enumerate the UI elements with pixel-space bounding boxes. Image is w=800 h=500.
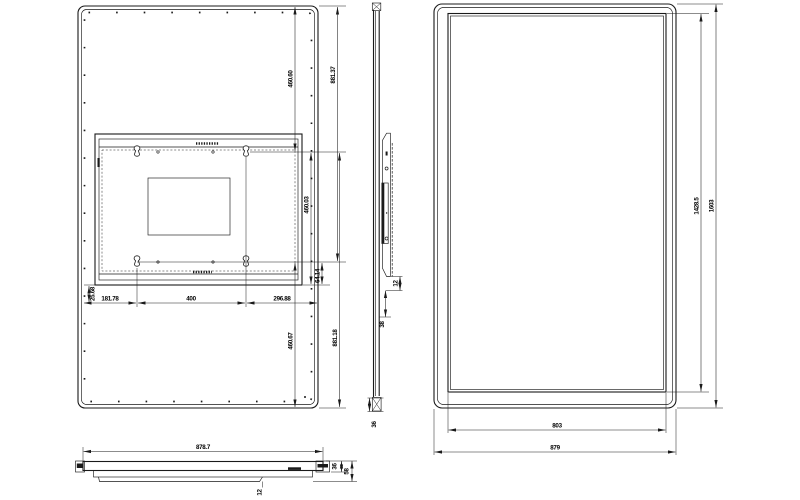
front-screen-inner-rect — [451, 16, 664, 390]
dim-label-25-68: 25.68 — [90, 286, 97, 301]
plate-dashed-recess — [102, 150, 295, 271]
bottom-tray — [99, 477, 263, 482]
bottom-mid-bar — [94, 471, 313, 478]
bottom-view: 878.7 36 58 12 — [76, 444, 358, 496]
front-dimensions: 1428.5 1603 803 879 — [434, 4, 723, 455]
rear-panel-outline — [78, 6, 318, 408]
dim-label-12: 12 — [393, 280, 400, 287]
mount-plate-outer — [95, 134, 302, 285]
side-wall-bracket — [382, 133, 392, 276]
dim-label-38: 38 — [379, 321, 386, 328]
dim-label-1603: 1603 — [709, 199, 716, 212]
dim-label-460-67: 460.67 — [288, 332, 295, 350]
bracket-hole — [385, 237, 388, 240]
bottom-profile — [76, 461, 330, 482]
side-dimensions: 12 38 36 — [368, 277, 403, 428]
rear-screw-ticks — [85, 13, 312, 402]
bracket-hole — [385, 167, 388, 170]
dim-label-12: 12 — [257, 489, 264, 496]
bracket-bottom-hook — [382, 258, 390, 277]
dim-label-460-60: 460.60 — [288, 70, 295, 88]
vesa-keyhole-top-right — [243, 146, 249, 156]
bottom-dark-segment — [288, 467, 301, 470]
bracket-tab — [386, 152, 388, 156]
dim-label-878-7: 878.7 — [196, 444, 211, 451]
bottom-right-cap-fill — [318, 464, 329, 468]
front-view: 1428.5 1603 803 879 — [434, 4, 723, 455]
dim-label-879: 879 — [550, 445, 560, 452]
bracket-top-hook — [382, 133, 390, 150]
dim-label-1428-5: 1428.5 — [694, 197, 701, 215]
dim-label-36: 36 — [371, 421, 378, 428]
dim-label-64-14: 64.14 — [315, 268, 322, 283]
front-screen-rect — [448, 14, 666, 393]
rear-dimensions: 460.60 881.37 460.03 64.14 25.68 181.78 … — [84, 6, 346, 408]
technical-drawing-page: 460.60 881.37 460.03 64.14 25.68 181.78 … — [0, 0, 800, 500]
front-bezel-rect — [438, 8, 673, 405]
plate-side-tab — [98, 158, 100, 167]
dim-label-181-78: 181.78 — [101, 296, 119, 303]
dim-label-881-18: 881.18 — [332, 329, 339, 347]
vesa-keyhole-top-left — [134, 146, 140, 156]
vesa-keyhole-bottom-left — [134, 256, 140, 266]
mount-plate-inner — [99, 139, 298, 280]
rear-inner-rect — [82, 10, 315, 405]
rear-outer-rect — [78, 6, 318, 408]
dim-label-58: 58 — [344, 468, 351, 475]
dim-label-400: 400 — [186, 296, 196, 303]
side-profile — [372, 3, 381, 411]
bracket-dot — [386, 212, 387, 213]
rear-corner-hole — [304, 396, 306, 398]
side-view: 12 38 36 — [368, 3, 403, 428]
front-outer-rect — [434, 4, 676, 408]
dim-label-803: 803 — [552, 423, 562, 430]
rear-view: 460.60 881.37 460.03 64.14 25.68 181.78 … — [78, 6, 346, 408]
bottom-left-cap-fill — [77, 464, 83, 469]
bottom-top-bar — [83, 462, 323, 471]
dim-label-36: 36 — [332, 463, 339, 470]
rear-mount-plate — [95, 134, 302, 285]
front-outline — [434, 4, 676, 408]
dim-label-460-03: 460.03 — [304, 196, 311, 214]
cad-drawing: 460.60 881.37 460.03 64.14 25.68 181.78 … — [0, 0, 800, 500]
screw-hole — [157, 151, 159, 153]
rating-label-rect — [148, 178, 230, 235]
dim-label-881-37: 881.37 — [330, 66, 337, 84]
screw-hole — [212, 151, 214, 153]
dim-label-296-88: 296.88 — [273, 296, 291, 303]
